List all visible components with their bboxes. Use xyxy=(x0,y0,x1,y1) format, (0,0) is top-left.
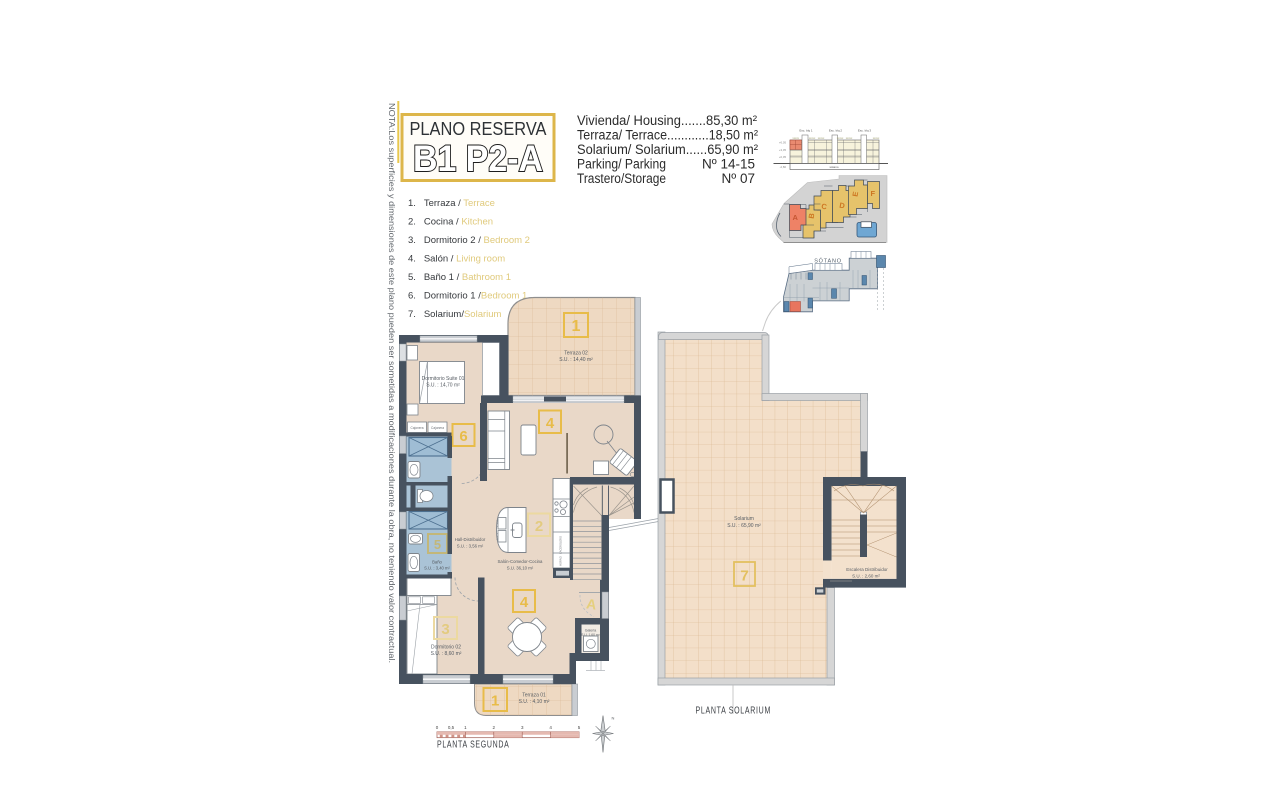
svg-text:Parking/ Parking: Parking/ Parking xyxy=(577,157,666,172)
svg-text:A: A xyxy=(793,213,799,222)
svg-text:S.U. : 14,70 m²: S.U. : 14,70 m² xyxy=(426,383,460,389)
svg-text:6: 6 xyxy=(459,428,467,445)
svg-text:sótano: sótano xyxy=(829,165,838,169)
svg-text:2: 2 xyxy=(535,518,543,535)
svg-text:Nº 14-15: Nº 14-15 xyxy=(702,157,755,172)
svg-text:Terraza 02: Terraza 02 xyxy=(564,351,588,357)
svg-text:7: 7 xyxy=(740,568,748,585)
svg-text:4: 4 xyxy=(520,594,529,611)
svg-text:Solarium/ Solarium......65,90: Solarium/ Solarium......65,90 m² xyxy=(577,142,758,157)
svg-text:S.U. : 4,10 m²: S.U. : 4,10 m² xyxy=(519,699,550,705)
svg-text:Salón-Comedor-Cocina: Salón-Comedor-Cocina xyxy=(498,559,544,564)
svg-text:xxxxx: xxxxx xyxy=(846,137,853,140)
svg-text:0,5: 0,5 xyxy=(448,725,455,730)
svg-text:Dormitorio 02: Dormitorio 02 xyxy=(431,645,461,651)
svg-text:Solarium: Solarium xyxy=(734,516,754,522)
svg-text:3. Dormitorio 2 / Bedroom 2: 3. Dormitorio 2 / Bedroom 2 xyxy=(408,235,530,246)
svg-text:xxxxx: xxxxx xyxy=(792,137,799,140)
svg-text:xxxxx: xxxxx xyxy=(873,137,880,140)
svg-text:-2,80: -2,80 xyxy=(780,165,787,169)
svg-text:S.U. : 14,40 m²: S.U. : 14,40 m² xyxy=(559,357,593,363)
svg-text:5: 5 xyxy=(434,537,441,552)
svg-text:Vivienda/ Housing.......85,30: Vivienda/ Housing.......85,30 m² xyxy=(577,113,757,128)
svg-text:1: 1 xyxy=(572,318,581,335)
svg-text:7. Solarium/Solarium: 7. Solarium/Solarium xyxy=(408,309,502,320)
svg-text:Baño: Baño xyxy=(432,560,442,565)
svg-text:S.U. 36,10 m²: S.U. 36,10 m² xyxy=(507,566,534,571)
svg-text:+0,05: +0,05 xyxy=(779,155,787,159)
svg-text:HORNO: HORNO xyxy=(559,556,563,566)
svg-text:S.U. : 8,60 m²: S.U. : 8,60 m² xyxy=(431,651,462,657)
svg-text:F: F xyxy=(871,189,876,198)
svg-text:xxxxx: xxxxx xyxy=(837,137,844,140)
svg-text:Esc. blq 2: Esc. blq 2 xyxy=(829,129,843,133)
svg-text:4: 4 xyxy=(546,415,555,432)
svg-text:Terraza 01: Terraza 01 xyxy=(522,693,546,699)
svg-text:Cajonera: Cajonera xyxy=(431,426,444,430)
svg-text:Dormitorio Suite 01: Dormitorio Suite 01 xyxy=(422,376,465,382)
svg-text:B1 P2-A: B1 P2-A xyxy=(413,138,543,179)
svg-text:Trastero/Storage: Trastero/Storage xyxy=(577,171,666,186)
svg-text:PLANTA SEGUNDA: PLANTA SEGUNDA xyxy=(437,740,510,751)
svg-text:3: 3 xyxy=(441,621,449,638)
svg-text:Esc. blq 3: Esc. blq 3 xyxy=(858,129,872,133)
svg-text:5. Baño 1 / Bathroom 1: 5. Baño 1 / Bathroom 1 xyxy=(408,272,511,283)
svg-text:PLANO RESERVA: PLANO RESERVA xyxy=(410,119,547,139)
svg-text:6. Dormitorio 1 /Bedroom 1: 6. Dormitorio 1 /Bedroom 1 xyxy=(408,291,527,302)
svg-text:1. Terraza / Terrace: 1. Terraza / Terrace xyxy=(408,198,495,209)
svg-text:S.U. : 2,60 m²: S.U. : 2,60 m² xyxy=(852,574,880,579)
svg-text:2. Cocina / Kitchen: 2. Cocina / Kitchen xyxy=(408,217,493,228)
svg-text:S.U. 1,60 m²: S.U. 1,60 m² xyxy=(581,633,600,637)
svg-text:Esc. blq 1: Esc. blq 1 xyxy=(799,129,813,133)
svg-text:Cajonera: Cajonera xyxy=(411,426,424,430)
svg-text:1: 1 xyxy=(491,693,499,710)
svg-text:NOTA:Los superficies y dimensi: NOTA:Los superficies y dimensiones de es… xyxy=(387,103,396,663)
svg-text:S.U. : 65,90 m²: S.U. : 65,90 m² xyxy=(727,523,761,529)
svg-text:+3,05: +3,05 xyxy=(779,148,787,152)
svg-text:N: N xyxy=(612,716,615,721)
svg-text:S.U. : 3,56 m²: S.U. : 3,56 m² xyxy=(457,544,484,549)
svg-text:S.U. : 3,40 m²: S.U. : 3,40 m² xyxy=(424,566,450,571)
svg-text:Nº 07: Nº 07 xyxy=(722,171,755,186)
svg-text:CACEROLERO: CACEROLERO xyxy=(559,536,563,554)
svg-text:PLANTA SOLARIUM: PLANTA SOLARIUM xyxy=(696,706,772,717)
svg-text:Terraza/ Terrace............18: Terraza/ Terrace............18,50 m² xyxy=(577,128,758,143)
svg-text:Escalera Distribuidor: Escalera Distribuidor xyxy=(846,567,888,572)
svg-text:4. Salón / Living room: 4. Salón / Living room xyxy=(408,254,505,265)
svg-text:xxxxx: xxxxx xyxy=(818,137,825,140)
svg-text:+6,05: +6,05 xyxy=(779,141,787,145)
svg-text:Hall-Distribuidor: Hall-Distribuidor xyxy=(455,537,486,542)
svg-text:xxxxx: xxxxx xyxy=(809,137,816,140)
